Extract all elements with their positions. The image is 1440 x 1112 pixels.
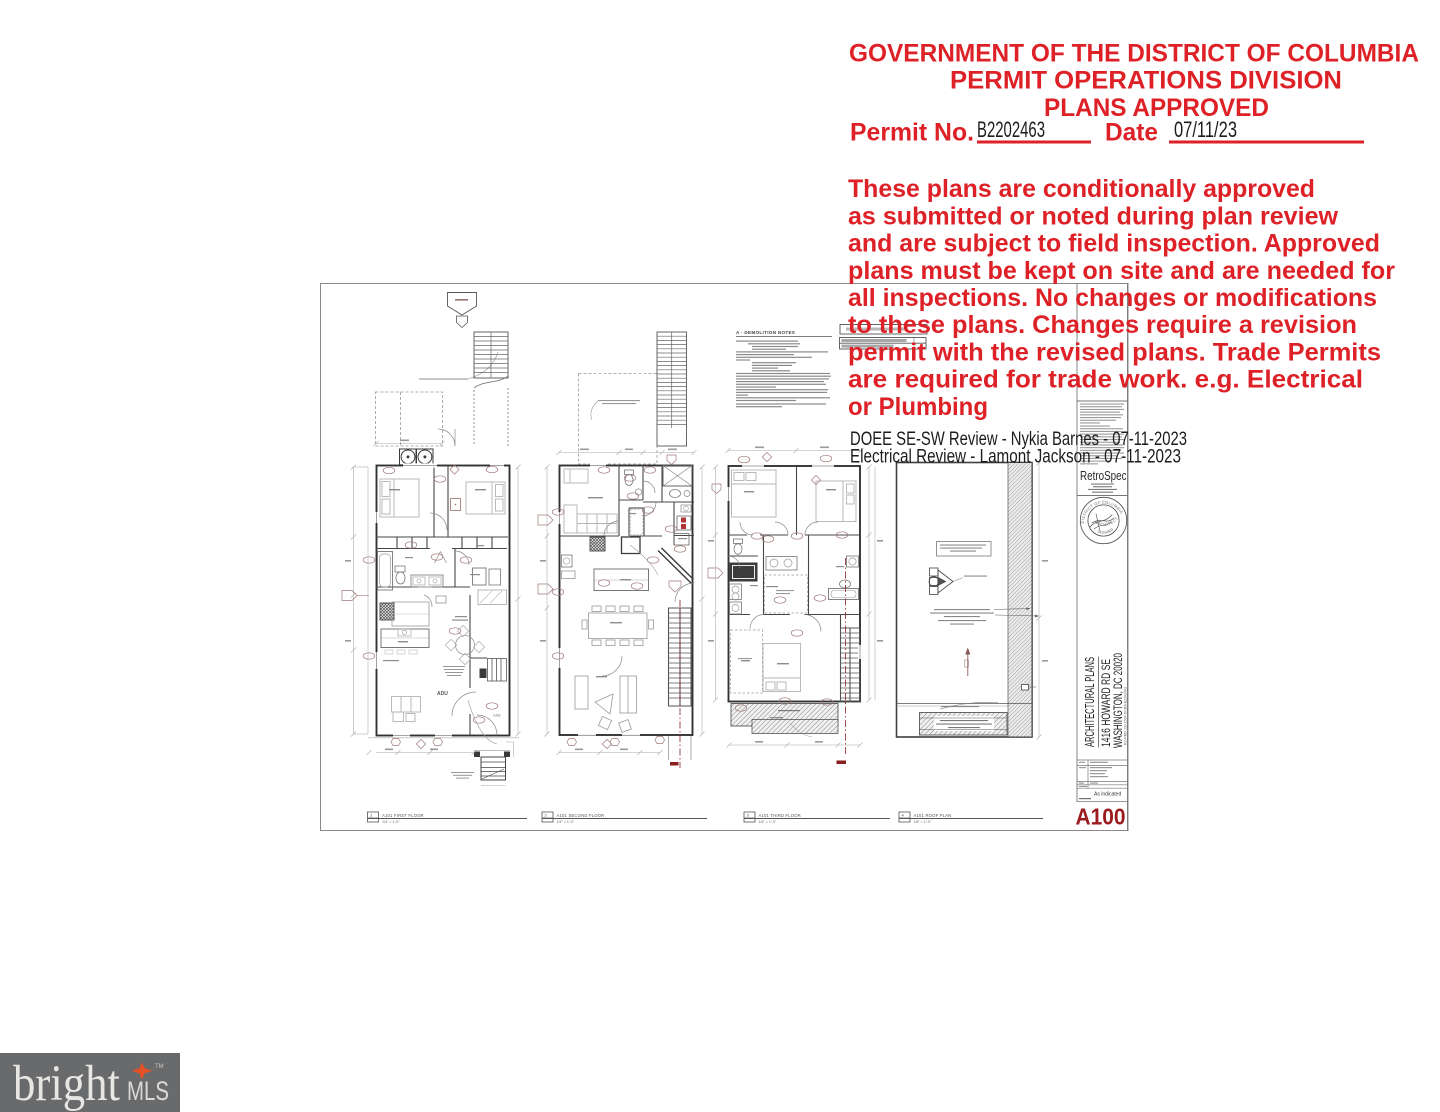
svg-text:1/4" = 1'-0": 1/4" = 1'-0" xyxy=(382,820,400,824)
svg-text:to these plans. Changes requi: to these plans. Changes require a revisi… xyxy=(848,311,1357,339)
svg-text:As indicated: As indicated xyxy=(1094,792,1121,798)
svg-text:Permit No.: Permit No. xyxy=(850,118,974,146)
svg-text:bright: bright xyxy=(13,1056,120,1112)
svg-text:3: 3 xyxy=(747,813,750,818)
svg-text:ARCHITECTURAL PLANS: ARCHITECTURAL PLANS xyxy=(1082,657,1097,747)
svg-text:or Plumbing: or Plumbing xyxy=(848,393,988,421)
svg-text:These plans are conditionally: These plans are conditionally approved xyxy=(848,175,1315,203)
svg-text:are required for trade work.: are required for trade work. e.g. Electr… xyxy=(848,366,1363,394)
svg-text:ADU: ADU xyxy=(437,691,448,697)
svg-text:A101 SECOND FLOOR: A101 SECOND FLOOR xyxy=(557,813,605,818)
svg-text:GOVERNMENT OF THE DISTRICT OF: GOVERNMENT OF THE DISTRICT OF COLUMBIA xyxy=(849,40,1419,68)
svg-text:Electrical Review - Lamont Jac: Electrical Review - Lamont Jackson - 07-… xyxy=(850,446,1181,468)
svg-text:A100: A100 xyxy=(1076,804,1126,830)
svg-text:A101 FIRST FLOOR: A101 FIRST FLOOR xyxy=(382,813,424,818)
svg-text:B2202463: B2202463 xyxy=(977,117,1045,142)
svg-text:RetroSpec: RetroSpec xyxy=(1080,469,1127,483)
svg-text:ARCHITECT: ARCHITECT xyxy=(1094,516,1120,527)
svg-text:RC-PRB Job 1564 DCRA B2202463: RC-PRB Job 1564 DCRA B2202463 xyxy=(1124,687,1128,745)
svg-text:GSB: GSB xyxy=(493,714,501,718)
svg-text:A - DEMOLITION NOTES: A - DEMOLITION NOTES xyxy=(736,330,795,335)
svg-text:1/4" = 1'-0": 1/4" = 1'-0" xyxy=(759,820,777,824)
svg-text:4: 4 xyxy=(902,813,905,818)
svg-text:1: 1 xyxy=(370,813,373,818)
svg-text:as submitted or noted during p: as submitted or noted during plan review xyxy=(848,202,1339,230)
svg-text:A101 THIRD FLOOR: A101 THIRD FLOOR xyxy=(759,813,801,818)
svg-text:1/8" = 1'-0": 1/8" = 1'-0" xyxy=(914,820,932,824)
svg-text:plans must be kept on site and: plans must be kept on site and are neede… xyxy=(848,257,1395,285)
svg-text:TM: TM xyxy=(155,1064,164,1070)
svg-text:1416 HOWARD RD SE: 1416 HOWARD RD SE xyxy=(1101,659,1113,747)
svg-text:all inspections. No changes o: all inspections. No changes or modificat… xyxy=(848,284,1377,312)
svg-text:2: 2 xyxy=(545,813,548,818)
svg-text:07/11/23: 07/11/23 xyxy=(1174,117,1237,142)
svg-text:MLS: MLS xyxy=(127,1076,169,1106)
svg-text:1/4" = 1'-0": 1/4" = 1'-0" xyxy=(557,820,575,824)
svg-text:A101 ROOF PLAN: A101 ROOF PLAN xyxy=(914,813,952,818)
svg-text:PERMIT OPERATIONS DIVISION: PERMIT OPERATIONS DIVISION xyxy=(950,67,1342,95)
svg-text:and are subject to field inspe: and are subject to field inspection. App… xyxy=(848,230,1380,258)
svg-text:Date: Date xyxy=(1105,118,1158,146)
svg-text:permit with the revised plans.: permit with the revised plans. Trade Per… xyxy=(848,338,1381,366)
